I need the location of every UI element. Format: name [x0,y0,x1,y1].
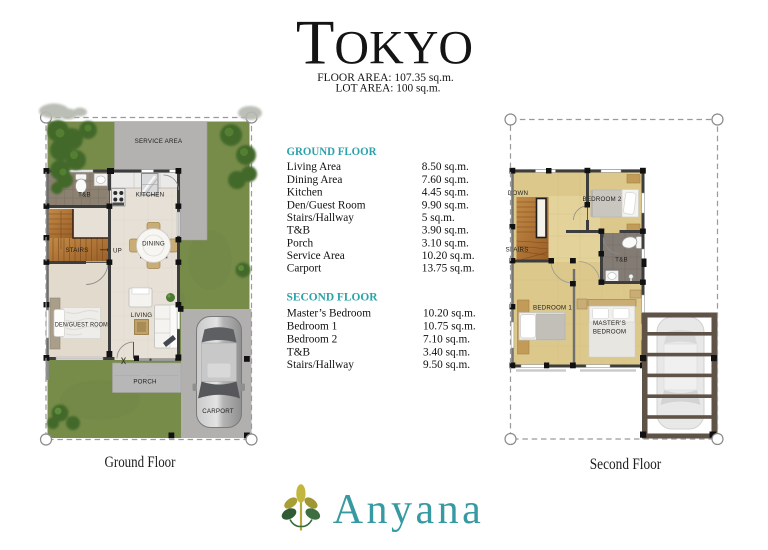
svg-text:CARPORT: CARPORT [202,408,234,415]
svg-text:DEN/GUEST ROOM: DEN/GUEST ROOM [55,322,108,329]
svg-text:3.90 sq.m.: 3.90 sq.m. [422,225,469,237]
svg-text:13.75 sq.m.: 13.75 sq.m. [422,263,475,275]
svg-text:Den/Guest Room: Den/Guest Room [287,199,366,211]
svg-text:PORCH: PORCH [133,379,156,386]
svg-text:4.45 sq.m.: 4.45 sq.m. [422,187,469,199]
svg-text:LOT AREA: 100 sq.m.: LOT AREA: 100 sq.m. [336,81,441,94]
svg-text:STAIRS: STAIRS [505,247,528,254]
svg-text:3.40 sq.m.: 3.40 sq.m. [423,346,470,358]
svg-text:Living Area: Living Area [287,161,341,173]
svg-text:T&B: T&B [78,192,91,199]
svg-text:8.50 sq.m.: 8.50 sq.m. [422,161,469,173]
svg-text:Service Area: Service Area [287,250,345,262]
svg-text:Bedroom 1: Bedroom 1 [287,321,338,333]
svg-text:10.20 sq.m.: 10.20 sq.m. [423,308,476,320]
svg-text:3.10 sq.m.: 3.10 sq.m. [422,237,469,249]
svg-text:T&B: T&B [615,257,628,264]
svg-text:SECOND FLOOR: SECOND FLOOR [287,291,379,303]
svg-text:Master’s Bedroom: Master’s Bedroom [287,308,371,320]
svg-text:Second Floor: Second Floor [590,456,662,473]
svg-text:BEDROOM 1: BEDROOM 1 [533,305,572,312]
svg-text:7.60 sq.m.: 7.60 sq.m. [422,174,469,186]
svg-text:Ground Floor: Ground Floor [105,454,177,471]
svg-text:Porch: Porch [287,237,314,249]
svg-text:9.90 sq.m.: 9.90 sq.m. [422,199,469,211]
svg-text:T&B: T&B [287,225,310,237]
svg-text:KITCHEN: KITCHEN [136,192,165,199]
svg-text:5 sq.m.: 5 sq.m. [422,212,455,224]
svg-text:Bedroom 2: Bedroom 2 [287,333,338,345]
svg-text:BEDROOM: BEDROOM [593,329,626,336]
svg-text:9.50 sq.m.: 9.50 sq.m. [423,359,470,371]
svg-text:Stairs/Hallway: Stairs/Hallway [287,212,354,224]
svg-text:7.10 sq.m.: 7.10 sq.m. [423,333,470,345]
svg-text:DINING: DINING [142,241,165,248]
svg-text:Anyana: Anyana [333,487,485,533]
svg-text:10.20 sq.m.: 10.20 sq.m. [422,250,475,262]
svg-text:STAIRS: STAIRS [65,247,88,254]
svg-text:10.75 sq.m.: 10.75 sq.m. [423,321,476,333]
svg-text:Kitchen: Kitchen [287,187,323,199]
svg-text:GROUND FLOOR: GROUND FLOOR [287,146,378,158]
svg-text:T&B: T&B [287,346,310,358]
svg-text:Carport: Carport [287,263,322,275]
svg-text:Stairs/Hallway: Stairs/Hallway [287,359,354,371]
svg-text:LIVING: LIVING [131,312,153,319]
svg-text:UP: UP [113,248,122,255]
svg-text:MASTER’S: MASTER’S [593,320,626,327]
svg-text:Dining Area: Dining Area [287,174,343,186]
svg-text:SERVICE AREA: SERVICE AREA [135,138,183,145]
